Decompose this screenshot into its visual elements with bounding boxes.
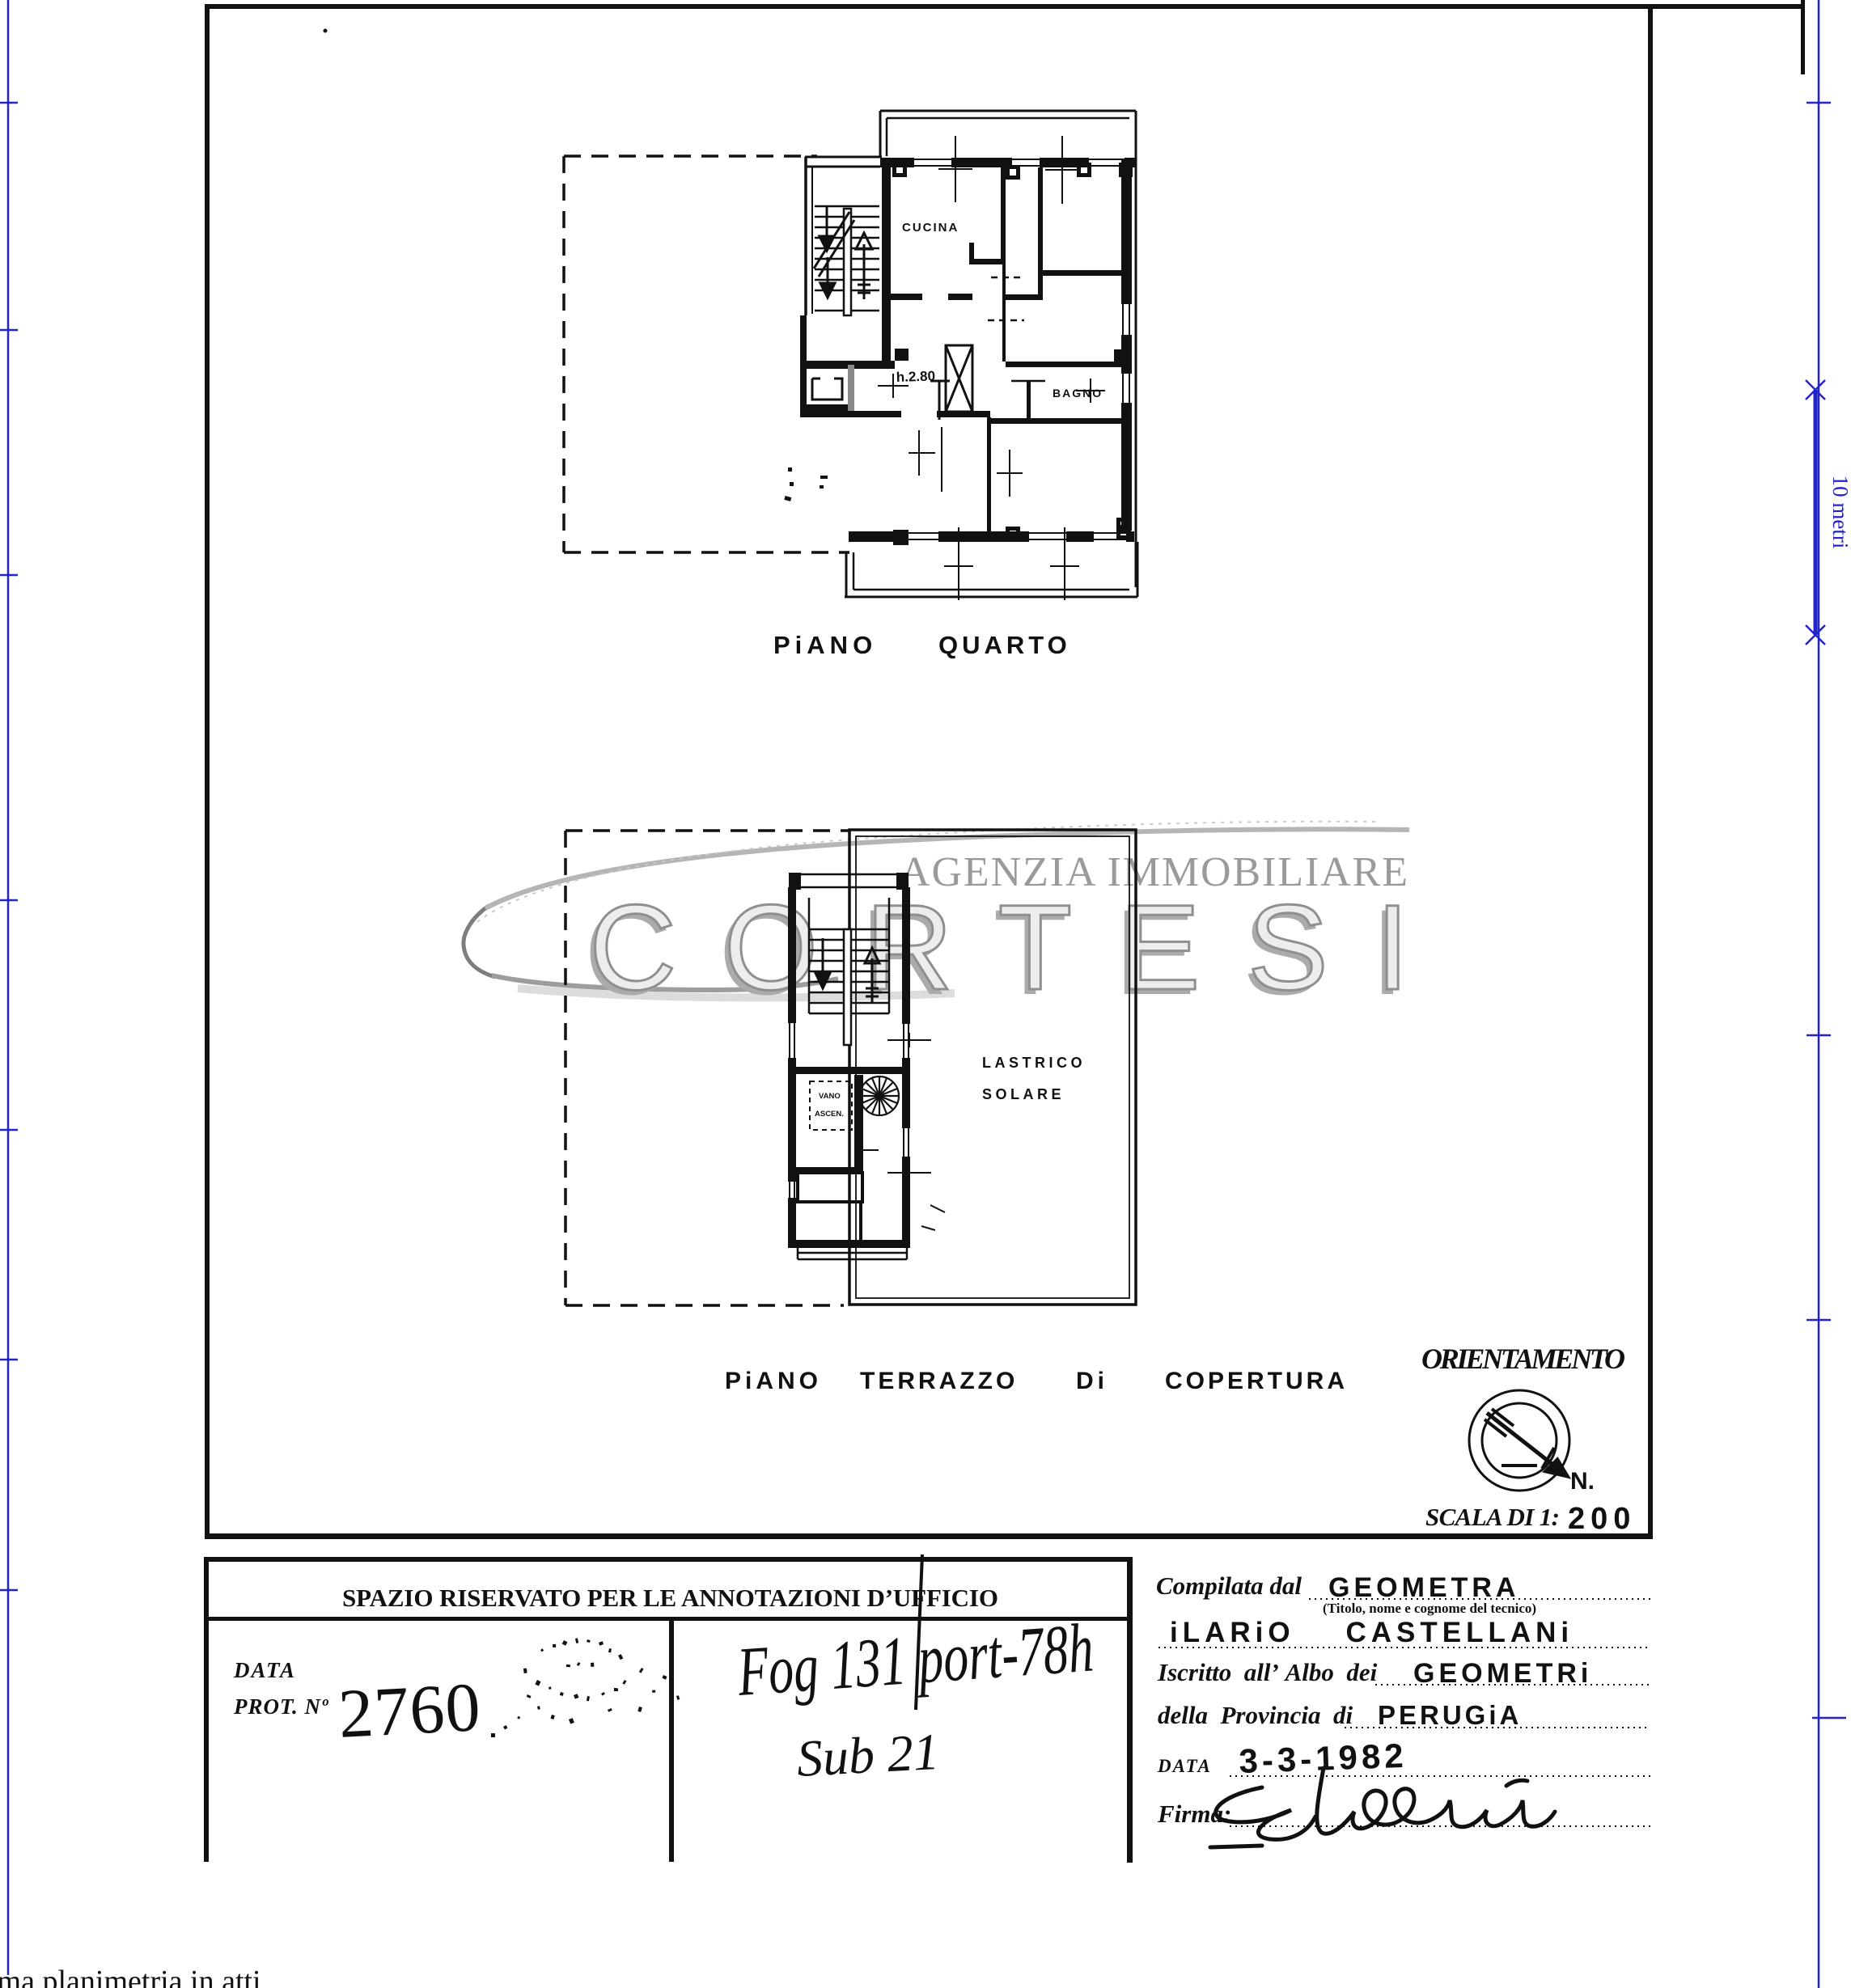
svg-text:PiANO: PiANO bbox=[725, 1368, 822, 1394]
svg-text:SPAZIO RISERVATO PER LE ANNOTA: SPAZIO RISERVATO PER LE ANNOTAZIONI D’UF… bbox=[342, 1584, 1000, 1612]
svg-text:PERUGiA: PERUGiA bbox=[1378, 1700, 1522, 1730]
svg-text:SCALA DI 1:: SCALA DI 1: bbox=[1425, 1503, 1560, 1531]
svg-text:PiANO: PiANO bbox=[773, 631, 877, 659]
svg-text:10 metri: 10 metri bbox=[1828, 476, 1851, 549]
svg-text:Compilata dal: Compilata dal bbox=[1156, 1571, 1302, 1600]
svg-text:ASCEN.: ASCEN. bbox=[815, 1110, 844, 1119]
svg-text:Di: Di bbox=[1076, 1368, 1108, 1394]
svg-text:DATA: DATA bbox=[233, 1658, 296, 1682]
svg-text:TERRAZZO: TERRAZZO bbox=[860, 1368, 1018, 1394]
svg-text:CUCINA: CUCINA bbox=[902, 221, 959, 235]
svg-text:della Provincia di: della Provincia di bbox=[1158, 1701, 1353, 1729]
svg-text:COPERTURA: COPERTURA bbox=[1165, 1368, 1348, 1394]
svg-text:Iscritto all’ Albo dei: Iscritto all’ Albo dei bbox=[1157, 1658, 1378, 1686]
svg-text:ORIENTAMENTO: ORIENTAMENTO bbox=[1421, 1343, 1625, 1375]
svg-text:iLARiO CASTELLANi: iLARiO CASTELLANi bbox=[1170, 1617, 1574, 1648]
svg-text:VANO: VANO bbox=[819, 1092, 841, 1101]
svg-text:GEOMETRi: GEOMETRi bbox=[1413, 1658, 1592, 1689]
svg-text:h.2.80: h.2.80 bbox=[896, 368, 935, 385]
svg-text:Sub 21: Sub 21 bbox=[795, 1723, 940, 1787]
svg-text:PROT. Nº: PROT. Nº bbox=[233, 1694, 328, 1719]
svg-text:N.: N. bbox=[1570, 1468, 1595, 1495]
svg-text:SOLARE: SOLARE bbox=[982, 1086, 1065, 1102]
svg-text:BAGNO: BAGNO bbox=[1053, 387, 1103, 400]
svg-text:LASTRICO: LASTRICO bbox=[982, 1055, 1086, 1071]
svg-text:(Titolo, nome e cognome del te: (Titolo, nome e cognome del tecnico) bbox=[1323, 1601, 1536, 1616]
svg-text:ima planimetria in atti: ima planimetria in atti bbox=[0, 1965, 261, 1988]
svg-text:DATA: DATA bbox=[1157, 1756, 1212, 1776]
svg-text:2760: 2760 bbox=[337, 1668, 483, 1753]
svg-text:GEOMETRA: GEOMETRA bbox=[1328, 1572, 1519, 1603]
svg-text:200: 200 bbox=[1568, 1502, 1636, 1536]
svg-text:QUARTO: QUARTO bbox=[938, 631, 1071, 659]
